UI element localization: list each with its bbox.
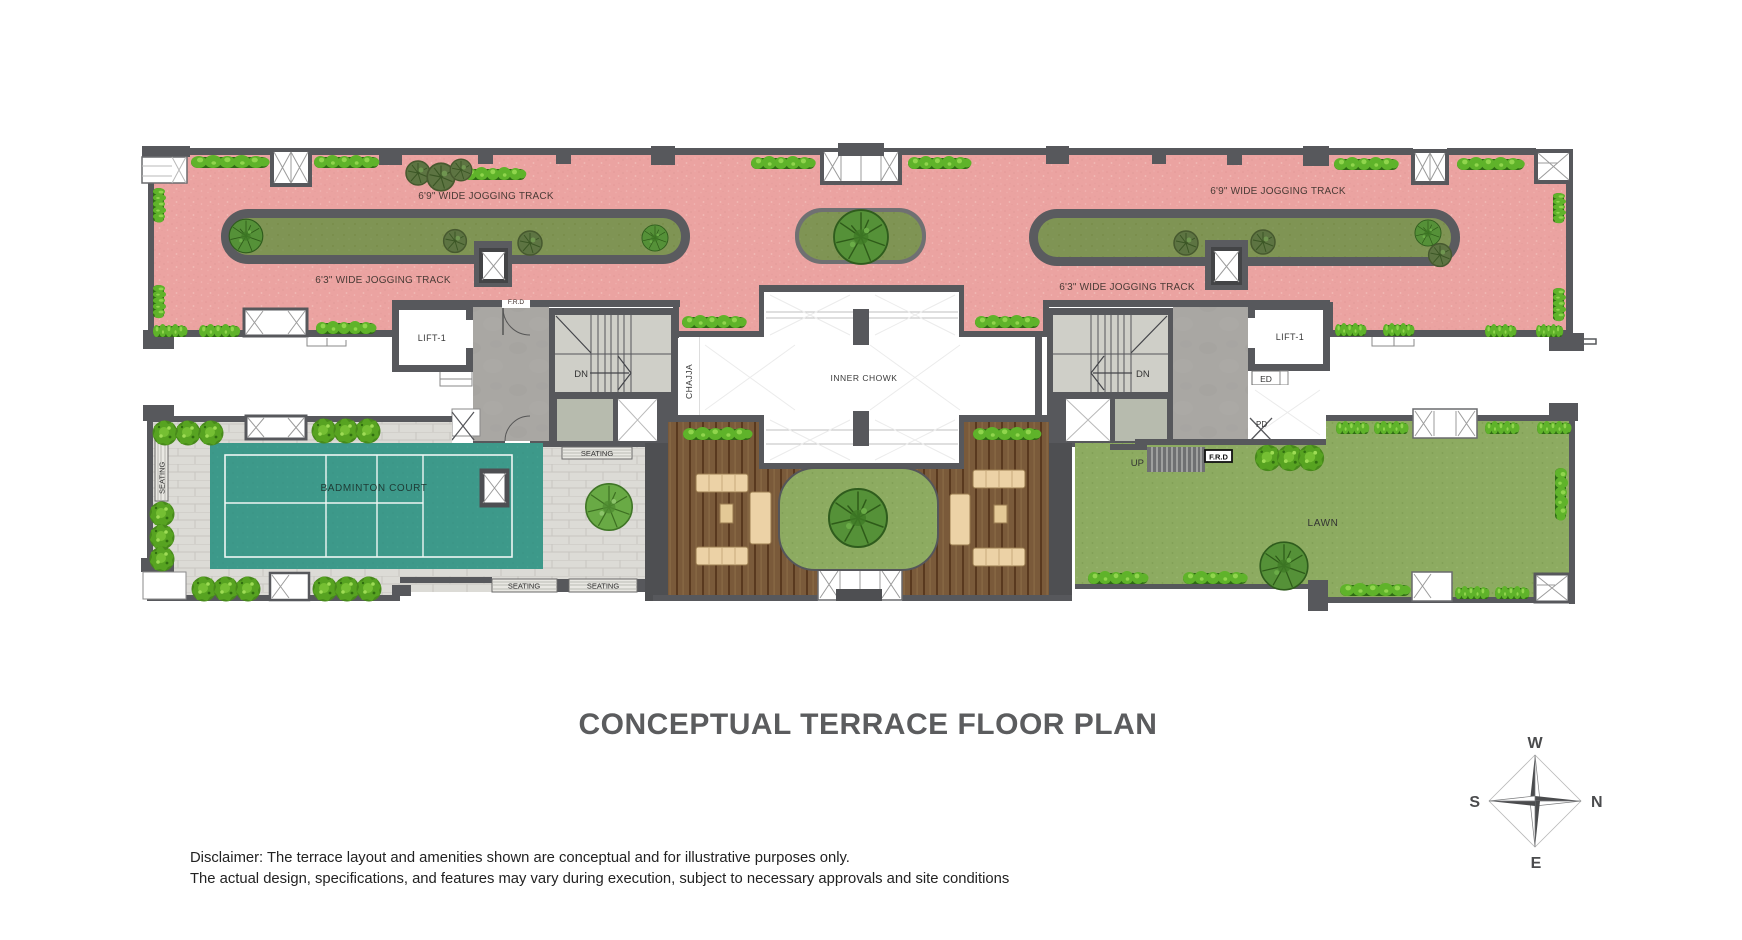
svg-text:W: W — [1527, 735, 1543, 752]
svg-text:DN: DN — [574, 369, 588, 380]
svg-text:F.R.D: F.R.D — [508, 299, 525, 306]
svg-text:CHAJJA: CHAJJA — [684, 364, 694, 399]
svg-text:DN: DN — [1136, 369, 1150, 380]
svg-text:INNER CHOWK: INNER CHOWK — [831, 373, 898, 383]
svg-text:Disclaimer: The terrace layout: Disclaimer: The terrace layout and ameni… — [190, 850, 850, 866]
svg-text:S: S — [1469, 794, 1480, 811]
svg-text:CONCEPTUAL TERRACE FLOOR PLAN: CONCEPTUAL TERRACE FLOOR PLAN — [579, 708, 1158, 741]
svg-text:6'9" WIDE JOGGING TRACK: 6'9" WIDE JOGGING TRACK — [418, 191, 554, 202]
svg-text:LIFT-1: LIFT-1 — [418, 333, 446, 343]
svg-text:SEATING: SEATING — [158, 461, 167, 494]
svg-text:UP: UP — [1131, 458, 1144, 469]
svg-text:E: E — [1531, 855, 1542, 872]
svg-text:6'3" WIDE JOGGING TRACK: 6'3" WIDE JOGGING TRACK — [1059, 282, 1195, 293]
svg-text:The actual design, specificati: The actual design, specifications, and f… — [190, 871, 1009, 887]
svg-text:F.R.D: F.R.D — [1209, 453, 1228, 462]
svg-text:ED: ED — [1260, 374, 1272, 384]
svg-text:LIFT-1: LIFT-1 — [1276, 332, 1304, 342]
svg-text:BADMINTON COURT: BADMINTON COURT — [321, 483, 428, 494]
svg-text:N: N — [1591, 794, 1603, 811]
svg-text:SEATING: SEATING — [508, 582, 541, 591]
svg-text:SEATING: SEATING — [587, 582, 620, 591]
svg-text:6'3" WIDE JOGGING TRACK: 6'3" WIDE JOGGING TRACK — [315, 275, 451, 286]
svg-text:6'9" WIDE JOGGING TRACK: 6'9" WIDE JOGGING TRACK — [1210, 186, 1346, 197]
svg-text:PD: PD — [1256, 420, 1267, 429]
svg-text:SEATING: SEATING — [581, 449, 614, 458]
svg-text:LAWN: LAWN — [1308, 518, 1339, 529]
